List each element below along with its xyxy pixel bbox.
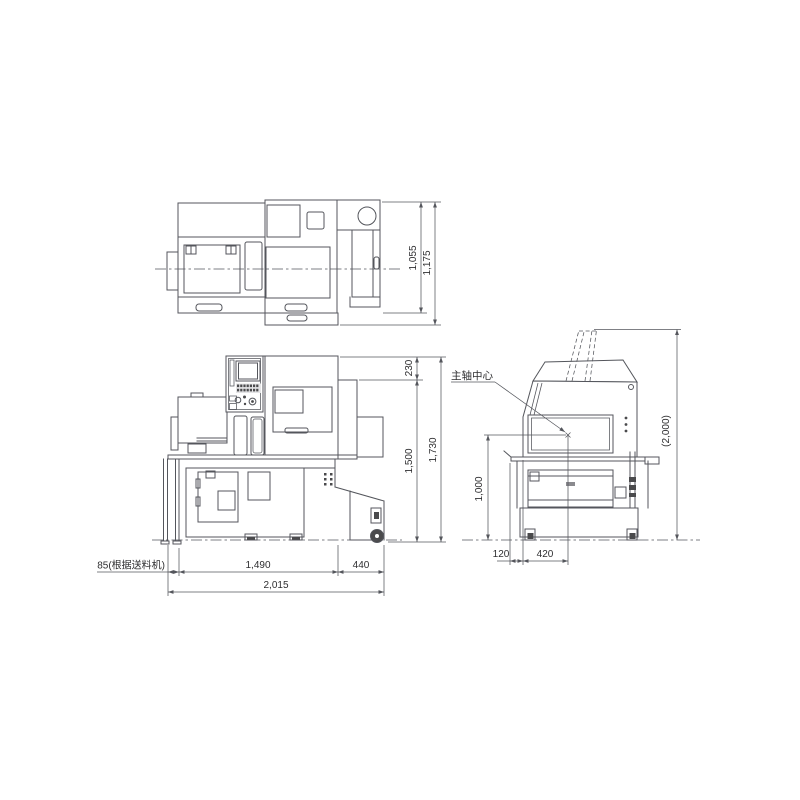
front-view-dimensions-bottom: 85(根据送料机) 1,490 440 2,015 [97,545,384,596]
control-panel [226,356,263,412]
side-view-outline [504,360,659,537]
dim-front-top-to-panel: 230 [404,359,415,376]
dim-side-spindle-depth: 420 [537,549,554,560]
dim-front-total-height: 1,730 [428,437,439,462]
dim-side-spindle-height: 1,000 [474,476,485,501]
machine-dimension-drawing: 1,055 1,175 [0,0,800,800]
front-view-dimensions-right: 230 1,500 1,730 [340,357,446,542]
side-view: 主轴中心 (2,000) 1,000 120 420 [451,330,700,566]
dim-front-right-width: 440 [353,560,370,571]
front-view-outline [168,356,384,540]
dim-front-total-width: 2,015 [263,580,288,591]
top-view: 1,055 1,175 [155,200,441,325]
spindle-center-label: 主轴中心 [451,369,493,382]
top-view-outline [167,200,380,325]
dim-side-open-cover-height: (2,000) [661,415,672,447]
dim-top-total-depth: 1,175 [422,250,433,275]
front-view: 230 1,500 1,730 85(根据送料机) 1,490 440 2,01… [97,356,446,596]
dim-top-body-depth: 1,055 [408,245,419,270]
dim-front-feeder-offset: 85(根据送料机) [97,559,165,572]
dim-side-front-offset: 120 [493,549,510,560]
dim-front-body-height: 1,500 [404,448,415,473]
technical-drawing-page: 1,055 1,175 [0,0,800,800]
vent-dots [324,473,333,486]
dim-front-body-width: 1,490 [245,560,270,571]
